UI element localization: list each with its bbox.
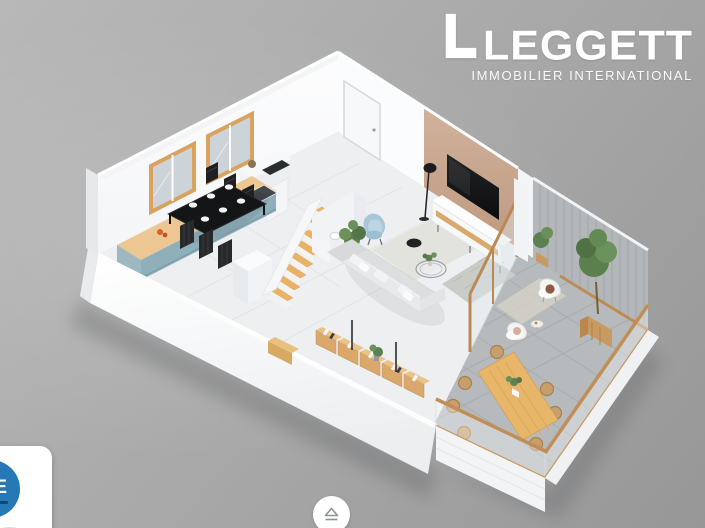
leaf-icon — [0, 453, 4, 469]
floorplan-photo[interactable]: LEGGETT IMMOBILIER INTERNATIONAL IDE — [0, 0, 705, 528]
pouf-icon — [407, 239, 422, 248]
badge-circle: IDE — [0, 460, 20, 518]
guide-badge[interactable]: IDE — [0, 446, 52, 528]
house-sketch-icon — [0, 520, 32, 528]
fruit-bowl-icon — [157, 229, 163, 235]
badge-text: IDE — [0, 478, 8, 497]
basket-icon — [248, 160, 256, 168]
leggett-l-icon — [444, 8, 478, 64]
logo-text: LEGGETT — [483, 29, 693, 64]
leggett-logo: LEGGETT IMMOBILIER INTERNATIONAL — [444, 8, 693, 83]
eject-icon — [323, 507, 340, 522]
badge-tagline-bar — [0, 501, 8, 504]
eject-button[interactable] — [313, 496, 350, 528]
logo-tagline: IMMOBILIER INTERNATIONAL — [444, 68, 693, 83]
